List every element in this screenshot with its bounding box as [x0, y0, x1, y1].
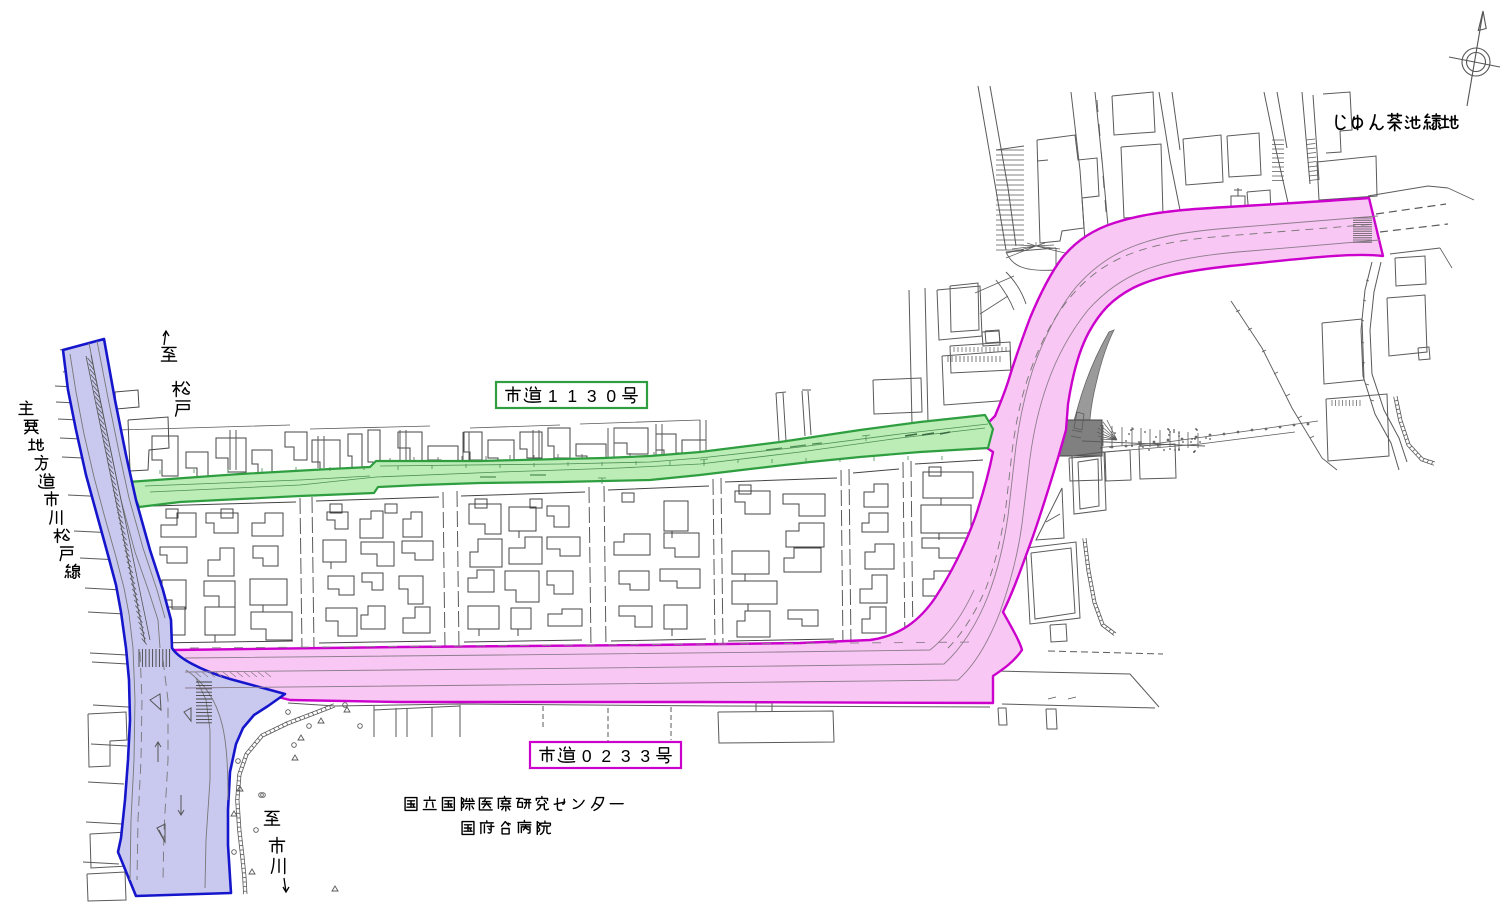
svg-text:0: 0 [606, 386, 616, 406]
svg-text:1: 1 [548, 386, 558, 406]
svg-text:3: 3 [587, 386, 597, 406]
svg-text:1: 1 [567, 386, 577, 406]
svg-text:0: 0 [582, 746, 592, 766]
svg-text:3: 3 [621, 746, 631, 766]
svg-text:2: 2 [601, 746, 611, 766]
svg-text:3: 3 [640, 746, 650, 766]
